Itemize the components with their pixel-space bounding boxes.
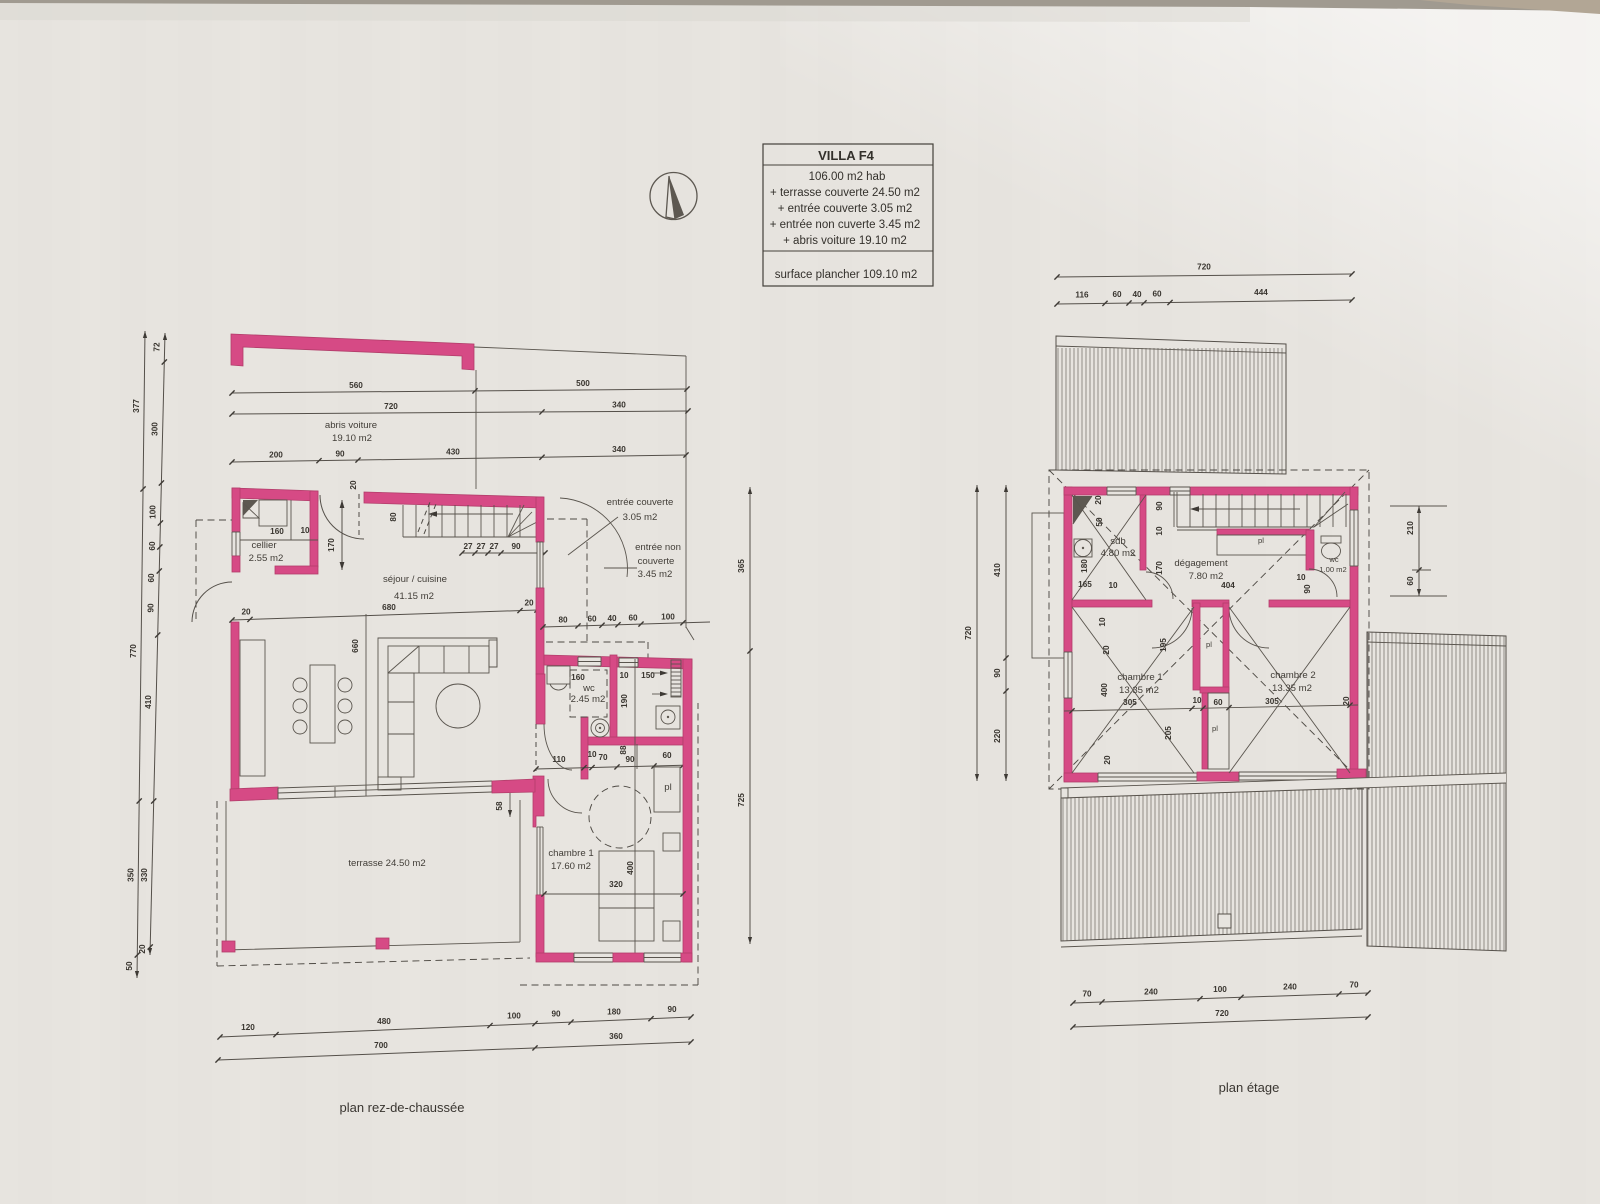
svg-text:160: 160: [571, 673, 585, 682]
svg-text:90: 90: [551, 1010, 561, 1019]
svg-text:+ entrée non cuverte 3.45 m2: + entrée non cuverte 3.45 m2: [770, 219, 921, 231]
svg-text:pl: pl: [1258, 536, 1264, 545]
svg-text:27: 27: [463, 542, 473, 551]
svg-text:plan étage: plan étage: [1219, 1080, 1280, 1095]
svg-text:190: 190: [620, 694, 629, 708]
svg-text:wc: wc: [582, 683, 595, 694]
svg-text:wc: wc: [1328, 555, 1338, 564]
svg-text:120: 120: [241, 1023, 255, 1032]
svg-text:305: 305: [1123, 698, 1137, 707]
svg-text:660: 660: [351, 639, 360, 653]
svg-text:10: 10: [1296, 573, 1306, 582]
svg-text:165: 165: [1078, 580, 1092, 589]
svg-text:10: 10: [587, 750, 597, 759]
svg-text:90: 90: [625, 755, 635, 764]
svg-text:27: 27: [489, 542, 499, 551]
svg-text:240: 240: [1144, 987, 1158, 996]
svg-text:17.60 m2: 17.60 m2: [551, 861, 591, 872]
svg-text:220: 220: [993, 729, 1002, 743]
svg-text:2.55 m2: 2.55 m2: [249, 553, 284, 564]
svg-text:20: 20: [1103, 755, 1112, 765]
svg-text:350: 350: [126, 868, 135, 882]
svg-text:20: 20: [349, 480, 358, 490]
svg-text:340: 340: [612, 445, 626, 454]
svg-text:340: 340: [612, 400, 626, 409]
svg-text:150: 150: [641, 671, 655, 680]
svg-text:410: 410: [993, 563, 1002, 577]
svg-text:680: 680: [382, 603, 396, 612]
svg-text:320: 320: [609, 880, 623, 889]
svg-text:88: 88: [619, 745, 628, 755]
svg-text:60: 60: [148, 541, 157, 551]
svg-text:106.00 m2 hab: 106.00 m2 hab: [809, 171, 886, 183]
svg-text:chambre 1: chambre 1: [548, 848, 593, 859]
svg-text:100: 100: [661, 612, 675, 621]
svg-text:20: 20: [1102, 645, 1111, 655]
svg-text:80: 80: [558, 615, 568, 624]
svg-text:entrée non: entrée non: [635, 542, 681, 553]
svg-text:VILLA F4: VILLA F4: [818, 148, 875, 163]
svg-text:430: 430: [446, 448, 460, 457]
svg-text:40: 40: [1132, 290, 1142, 299]
svg-text:70: 70: [1349, 980, 1359, 989]
svg-text:70: 70: [598, 753, 608, 762]
svg-text:210: 210: [1406, 521, 1415, 535]
svg-text:13.35 m2: 13.35 m2: [1119, 685, 1159, 696]
svg-text:+ entrée couverte 3.05 m2: + entrée couverte 3.05 m2: [778, 203, 913, 215]
svg-text:surface plancher 109.10 m2: surface plancher 109.10 m2: [775, 269, 918, 281]
svg-text:3.45 m2: 3.45 m2: [638, 569, 673, 580]
svg-text:10: 10: [1098, 617, 1107, 627]
svg-text:+ abris voiture 19.10 m2: + abris voiture 19.10 m2: [783, 235, 907, 247]
svg-text:+ terrasse couverte 24.50 m2: + terrasse couverte 24.50 m2: [770, 187, 920, 199]
svg-text:110: 110: [552, 755, 566, 764]
svg-text:chambre 2: chambre 2: [1270, 670, 1315, 681]
svg-text:50: 50: [1095, 517, 1104, 527]
svg-text:4.80 m2: 4.80 m2: [1101, 548, 1136, 559]
svg-text:10: 10: [619, 671, 629, 680]
svg-text:72: 72: [153, 342, 162, 352]
svg-text:180: 180: [1080, 559, 1089, 573]
svg-text:60: 60: [587, 615, 597, 624]
svg-text:90: 90: [667, 1005, 677, 1014]
svg-text:cellier: cellier: [251, 540, 277, 551]
svg-text:60: 60: [1112, 290, 1122, 299]
svg-text:410: 410: [144, 695, 153, 709]
svg-text:20: 20: [1342, 696, 1351, 706]
svg-text:90: 90: [146, 603, 155, 613]
svg-text:10: 10: [1108, 581, 1118, 590]
svg-text:60: 60: [147, 573, 156, 583]
svg-text:couverte: couverte: [638, 556, 675, 567]
svg-text:80: 80: [389, 512, 398, 522]
svg-text:70: 70: [1082, 990, 1092, 999]
svg-text:100: 100: [507, 1012, 521, 1021]
svg-text:58: 58: [495, 801, 504, 811]
svg-text:500: 500: [576, 379, 590, 388]
svg-text:720: 720: [384, 402, 398, 411]
svg-text:7.80 m2: 7.80 m2: [1189, 571, 1224, 582]
svg-text:400: 400: [626, 861, 635, 875]
svg-text:770: 770: [129, 644, 138, 658]
svg-text:400: 400: [1100, 683, 1109, 697]
svg-text:chambre 1: chambre 1: [1117, 672, 1162, 683]
svg-text:abris voiture: abris voiture: [325, 420, 377, 431]
svg-text:plan rez-de-chaussée: plan rez-de-chaussée: [339, 1100, 464, 1115]
svg-text:195: 195: [1159, 638, 1168, 652]
svg-text:entrée couverte: entrée couverte: [607, 497, 674, 508]
svg-text:170: 170: [1155, 561, 1164, 575]
svg-text:240: 240: [1283, 983, 1297, 992]
svg-text:20: 20: [524, 598, 534, 607]
svg-text:dégagement: dégagement: [1174, 558, 1228, 569]
svg-text:720: 720: [964, 626, 973, 640]
svg-text:360: 360: [609, 1032, 623, 1041]
svg-text:90: 90: [1155, 501, 1164, 511]
svg-text:60: 60: [662, 751, 672, 760]
svg-text:330: 330: [140, 868, 149, 882]
svg-text:170: 170: [327, 538, 336, 552]
svg-text:377: 377: [132, 399, 141, 413]
svg-text:terrasse 24.50 m2: terrasse 24.50 m2: [348, 858, 425, 869]
svg-text:700: 700: [374, 1041, 388, 1050]
svg-text:41.15 m2: 41.15 m2: [394, 591, 434, 602]
svg-text:pl: pl: [1212, 724, 1218, 733]
svg-text:725: 725: [737, 793, 746, 807]
svg-text:116: 116: [1075, 291, 1089, 300]
svg-text:100: 100: [1213, 985, 1227, 994]
svg-text:13.35 m2: 13.35 m2: [1272, 683, 1312, 694]
svg-text:365: 365: [737, 559, 746, 573]
svg-text:séjour / cuisine: séjour / cuisine: [383, 574, 447, 585]
svg-text:720: 720: [1197, 263, 1211, 272]
svg-text:205: 205: [1164, 726, 1173, 740]
svg-text:3.05 m2: 3.05 m2: [623, 512, 658, 523]
svg-text:20: 20: [1094, 495, 1103, 505]
svg-text:720: 720: [1215, 1009, 1229, 1018]
svg-text:90: 90: [1303, 584, 1312, 594]
svg-text:60: 60: [1406, 576, 1415, 586]
svg-text:100: 100: [149, 505, 158, 519]
svg-text:180: 180: [607, 1007, 621, 1016]
svg-text:20: 20: [241, 608, 251, 617]
svg-text:19.10 m2: 19.10 m2: [332, 433, 372, 444]
svg-text:40: 40: [607, 614, 617, 623]
svg-text:20: 20: [138, 944, 147, 954]
svg-text:10: 10: [1155, 526, 1164, 536]
svg-text:1.00 m2: 1.00 m2: [1319, 565, 1346, 574]
svg-text:90: 90: [511, 542, 521, 551]
svg-text:27: 27: [476, 542, 486, 551]
svg-text:160: 160: [270, 527, 284, 536]
svg-text:560: 560: [349, 381, 363, 390]
svg-text:404: 404: [1221, 581, 1235, 590]
svg-text:90: 90: [993, 668, 1002, 678]
svg-text:300: 300: [151, 422, 160, 436]
svg-text:2.45 m2: 2.45 m2: [571, 694, 606, 705]
svg-text:200: 200: [269, 450, 283, 459]
svg-text:pl: pl: [1206, 640, 1212, 649]
svg-text:60: 60: [1213, 698, 1223, 707]
svg-text:10: 10: [1192, 696, 1202, 705]
svg-text:60: 60: [628, 613, 638, 622]
svg-text:480: 480: [377, 1017, 391, 1026]
svg-text:60: 60: [1152, 290, 1162, 299]
svg-text:50: 50: [125, 961, 134, 971]
svg-text:pl: pl: [664, 782, 671, 793]
svg-text:90: 90: [335, 449, 345, 458]
svg-text:305: 305: [1265, 697, 1279, 706]
svg-text:10: 10: [300, 526, 310, 535]
svg-text:444: 444: [1254, 288, 1268, 297]
svg-text:sdb: sdb: [1110, 536, 1125, 547]
